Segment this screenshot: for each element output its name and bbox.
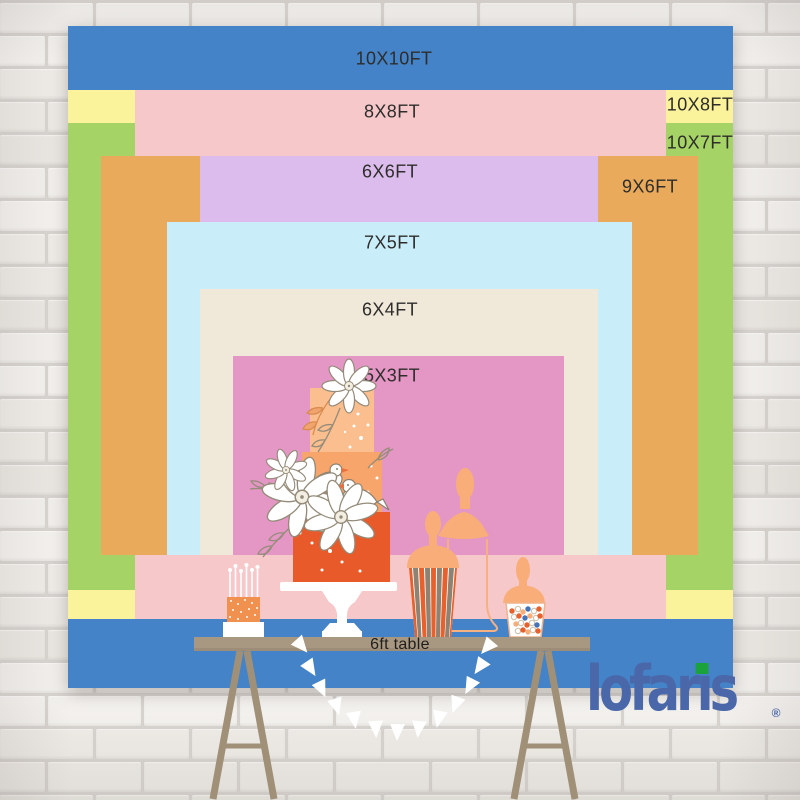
lofaris-logo: lofarıs ®	[586, 660, 772, 722]
registered-mark: ®	[772, 706, 781, 720]
product-image: 10X10FT 10X8FT 10X7FT 8X8FT 9X6FT 6X6FT …	[0, 0, 800, 800]
logo-wordmark: lofarıs	[586, 660, 735, 718]
cake-stand-icon	[280, 582, 397, 638]
mini-cake-with-candles-icon	[223, 563, 264, 638]
logo-green-chip-icon	[696, 663, 709, 674]
tiered-cake-icon	[250, 359, 397, 638]
table-icon	[194, 637, 590, 799]
table-size-label: 6ft table	[370, 636, 430, 654]
candy-jar-icon	[503, 557, 545, 637]
